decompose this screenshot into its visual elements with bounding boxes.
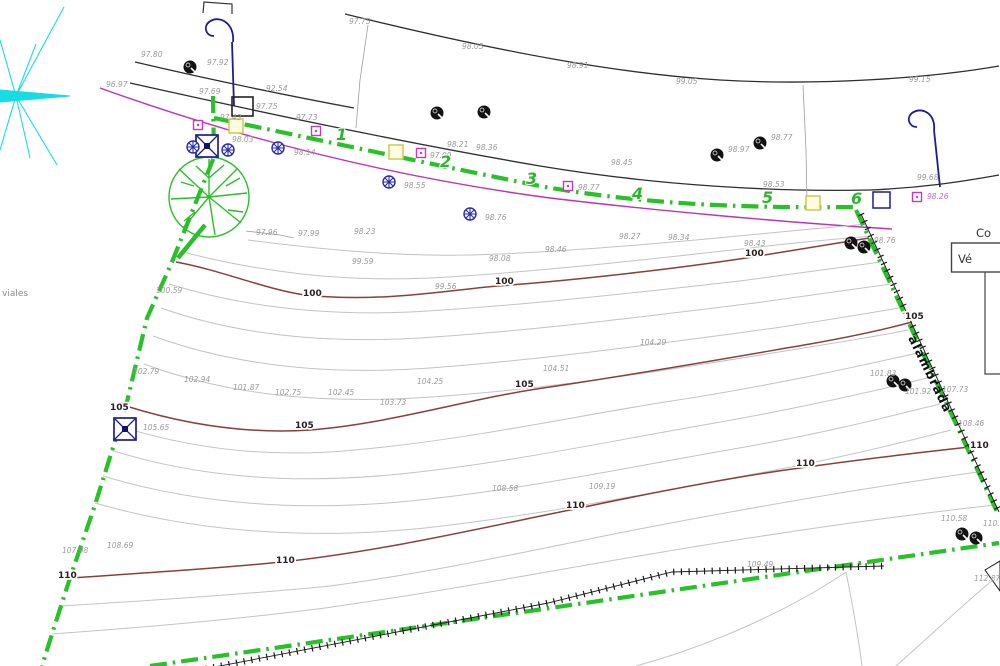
- spot-elevation-label: 97.75: [256, 102, 278, 111]
- pole-point-icon: [184, 61, 197, 74]
- contour-elevation-label: 100: [745, 249, 764, 259]
- pole-point-icon: [970, 532, 983, 545]
- spot-elevation-label: 98.76: [485, 213, 507, 222]
- spot-elevation-label: 102.45: [328, 388, 354, 397]
- contour-lines-minor: [52, 224, 1000, 666]
- spot-elevation-label: 102.94: [184, 375, 210, 384]
- spot-elevation-label: 98.76: [874, 236, 896, 245]
- contour-elevation-label: 110: [970, 441, 989, 451]
- boundary-vertex-number: 6: [851, 189, 862, 208]
- benchmark-icon: [272, 142, 284, 154]
- spot-elevation-label: 98.36: [476, 143, 498, 152]
- utility-box-icon: [913, 193, 922, 202]
- driveway-edge: [803, 85, 807, 203]
- utility-box-icon: [417, 149, 426, 158]
- spot-elevation-label: 98.55: [404, 181, 426, 190]
- road-edge-lower: [130, 83, 999, 190]
- utility-box-icon: [564, 182, 573, 191]
- contour-110: [70, 447, 970, 578]
- spot-elevation-label: 104.25: [417, 377, 443, 386]
- spot-elevation-label: 98.34: [668, 233, 690, 242]
- spot-elevation-label: 105.65: [143, 423, 169, 432]
- spot-elevation-label: 104.51: [543, 364, 569, 373]
- spot-elevation-label: 98.23: [354, 227, 376, 236]
- spot-elevation-label: 102.79: [133, 367, 159, 376]
- pole-point-icon: [478, 106, 491, 119]
- spot-elevation-label: 98.97: [728, 145, 750, 154]
- boundary-north: [214, 118, 855, 207]
- survey-monument-icon: [114, 418, 136, 440]
- utility-box-icon: [389, 145, 403, 159]
- utility-box-icon: [806, 196, 820, 210]
- spot-elevation-label: 98.05: [462, 42, 484, 51]
- spot-elevation-label: 107.73: [942, 385, 968, 394]
- spot-elevation-label: 109.19: [589, 482, 615, 491]
- pole-point-icon: [858, 241, 871, 254]
- topographic-site-plan: Co Vé viales alambrada 97.8097.7598.0598…: [0, 0, 1000, 666]
- benchmark-icon: [222, 144, 234, 156]
- contour-elevation-label: 110: [58, 571, 77, 581]
- spot-elevation-label: 98.77: [578, 183, 600, 192]
- spot-elevation-label: 104.29: [640, 338, 666, 347]
- contour-elevation-label: 100: [495, 277, 514, 287]
- spot-elevation-label: 108.58: [492, 484, 518, 493]
- contour-lines-index: [70, 238, 970, 578]
- spot-elevation-label: 102.75: [275, 388, 301, 397]
- spot-elevation-label: 98.27: [619, 232, 641, 241]
- pole-point-icon: [431, 107, 444, 120]
- benchmark-icon: [187, 141, 199, 153]
- spot-elevation-label: 98.46: [545, 245, 567, 254]
- spot-elevation-label: 97.80: [141, 50, 163, 59]
- pole-point-icon: [845, 237, 858, 250]
- coordinates-table: Co Vé: [952, 226, 1000, 374]
- spot-elevation-label: 107.98: [62, 546, 88, 555]
- spot-elevation-label: 97.92: [207, 58, 229, 67]
- spot-elevation-label: 101.92: [905, 387, 931, 396]
- spot-elevation-label: 99.56: [435, 282, 457, 291]
- spot-elevation-label: 97.73: [296, 113, 318, 122]
- boundary-vertex-number: 3: [526, 169, 537, 188]
- margin-label-viales: viales: [2, 289, 28, 299]
- spot-elevation-label: 98.77: [771, 133, 793, 142]
- spot-elevation-label: 109.49: [747, 560, 773, 569]
- spot-elevation-label: 112.87: [974, 574, 1000, 583]
- benchmark-icon: [383, 176, 395, 188]
- table-border: [985, 272, 1000, 374]
- utility-box-icon: [312, 127, 321, 136]
- contour-elevation-label: 105: [515, 380, 534, 390]
- driveway-edge: [356, 25, 368, 128]
- contour-elevation-label: 110: [796, 459, 815, 469]
- north-star-icon: [0, 7, 70, 165]
- spot-elevation-label: 99.15: [909, 75, 931, 84]
- pole-point-icon: [956, 528, 969, 541]
- manhole-square: [873, 192, 890, 208]
- spot-elevation-label: 97.75: [349, 17, 371, 26]
- site-plan-canvas: Co Vé viales alambrada 97.8097.7598.0598…: [0, 0, 1000, 666]
- spot-elevation-label: 97.99: [298, 229, 320, 238]
- spot-elevation-label: 99.68: [917, 173, 939, 182]
- small-structure: [203, 2, 232, 14]
- spot-elevation-label: 98.03: [232, 135, 254, 144]
- spot-elevation-label: 98.45: [611, 158, 633, 167]
- tree-icon: [169, 157, 249, 258]
- utility-box-icon: [194, 121, 203, 130]
- road-lines: [130, 2, 999, 238]
- contour-elevation-label: 110: [566, 501, 585, 511]
- spot-elevation-label: 99.59: [352, 257, 374, 266]
- spot-elevation-label: 97.96: [256, 228, 278, 237]
- road-edge-upper: [345, 14, 999, 82]
- spot-elevation-label: 108.69: [107, 541, 133, 550]
- spot-elevation-label: 108.46: [958, 419, 984, 428]
- spot-elevation-label: 110.58: [941, 514, 967, 523]
- contour-105: [126, 322, 912, 431]
- spot-elevation-label: 92.54: [266, 84, 288, 93]
- spot-elevation-label: 103.73: [380, 398, 406, 407]
- spot-elevation-label: 97.69: [199, 87, 221, 96]
- spot-elevation-label: 97.43: [220, 113, 242, 122]
- spot-elevation-label: 100.59: [156, 286, 182, 295]
- contour-elevation-label: 100: [303, 289, 322, 299]
- boundary-vertex-number: 1: [336, 125, 347, 144]
- spot-elevation-label: 98.08: [489, 254, 511, 263]
- spot-elevation-label: 98.26: [927, 192, 949, 201]
- spot-elevation-label: 98.14: [294, 148, 316, 157]
- boundary-vertex-number: 4: [631, 184, 643, 203]
- table-title: Co: [976, 226, 991, 240]
- spot-elevation-label: 101.83: [870, 369, 896, 378]
- boundary-vertex-number: 2: [440, 152, 451, 171]
- contour-elevation-label: 105: [110, 403, 129, 413]
- benchmark-icon: [464, 208, 476, 220]
- pole-point-icon: [711, 149, 724, 162]
- spot-elevation-label: 98.43: [744, 239, 766, 248]
- fence-lines: [168, 214, 999, 666]
- fence-label-alambrada: alambrada: [905, 333, 955, 415]
- contour-elevation-label: 105: [295, 421, 314, 431]
- spot-elevation-label: 96.97: [106, 80, 128, 89]
- spot-elevation-label: 101.87: [233, 383, 259, 392]
- contour-elevation-label: 105: [905, 312, 924, 322]
- spot-elevation-label: 98.91: [567, 61, 588, 70]
- boundary-vertex-number: 5: [762, 188, 773, 207]
- spot-elevation-label: 99.05: [676, 77, 698, 86]
- spot-elevation-label: 110.69: [983, 519, 1000, 528]
- pole-point-icon: [754, 137, 767, 150]
- spot-elevation-label: 98.21: [447, 140, 468, 149]
- table-header-label: Vé: [958, 252, 972, 266]
- contour-elevation-label: 110: [276, 556, 295, 566]
- road-edge-left: [135, 62, 354, 108]
- labels-layer: viales alambrada 97.8097.7598.0598.9199.…: [2, 17, 1000, 583]
